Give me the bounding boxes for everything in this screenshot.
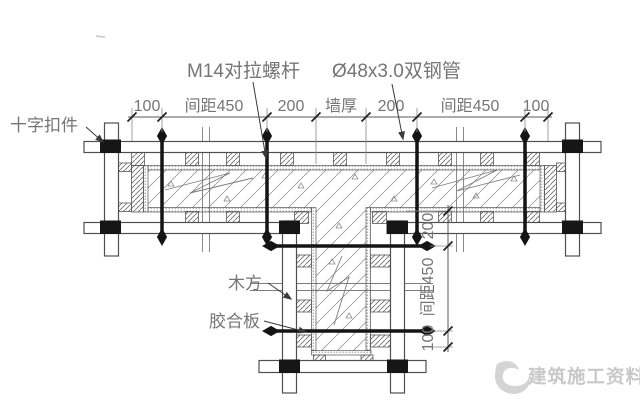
dim-label-200-right: 200 <box>378 98 405 115</box>
stem-concrete <box>316 208 366 351</box>
dim-label-spacing450-vertical: 间距450 <box>419 258 437 317</box>
plywood-end-right <box>540 166 545 213</box>
stray-mark <box>96 36 105 37</box>
dim-label-100-left: 100 <box>134 98 161 115</box>
label-cross-coupler: 十字扣件 <box>10 116 78 135</box>
watermark-text: 建筑施工资料 <box>528 366 640 387</box>
dim-label-spacing450-right: 间距450 <box>441 97 500 115</box>
plywood-top <box>148 166 540 171</box>
plywood-stem-right <box>366 208 371 351</box>
watermark: 建筑施工资料 <box>495 361 640 394</box>
cross-coupler-icon <box>387 360 408 374</box>
cross-coupler-icon <box>279 221 300 235</box>
leader-cross-coupler <box>86 127 103 142</box>
label-plywood: 胶合板 <box>209 312 260 331</box>
plywood-stem-left <box>312 208 317 351</box>
cross-coupler-icon <box>279 360 300 374</box>
label-tie-rod: M14对拉螺杆 <box>187 60 300 82</box>
formwork-detail-page: 100 间距450 200 墙厚 200 间距450 100 200 间距450… <box>0 0 640 407</box>
plywood-end-left <box>144 166 149 213</box>
cross-coupler-icon <box>387 221 408 235</box>
concrete-walls <box>148 170 540 351</box>
t-wall-formwork-diagram: 100 间距450 200 墙厚 200 间距450 100 200 间距450… <box>0 0 640 407</box>
dim-label-200-vertical: 200 <box>420 213 437 240</box>
dim-label-200-left: 200 <box>278 98 305 115</box>
dim-label-wall-thickness: 墙厚 <box>325 97 357 115</box>
cross-coupler-icon <box>562 221 583 235</box>
cross-coupler-icon <box>100 221 121 235</box>
dim-label-100-vertical: 100 <box>420 325 437 352</box>
dim-label-100-right: 100 <box>523 98 550 115</box>
plywood-bottom-right <box>371 208 541 213</box>
label-steel-pipe: Ø48x3.0双钢管 <box>332 60 461 82</box>
watermark-logo-icon <box>495 361 530 394</box>
label-timber: 木方 <box>228 274 262 293</box>
dim-label-spacing450-left: 间距450 <box>185 97 244 115</box>
plywood-stem-cap <box>312 351 372 356</box>
cross-coupler-icon <box>562 140 583 154</box>
